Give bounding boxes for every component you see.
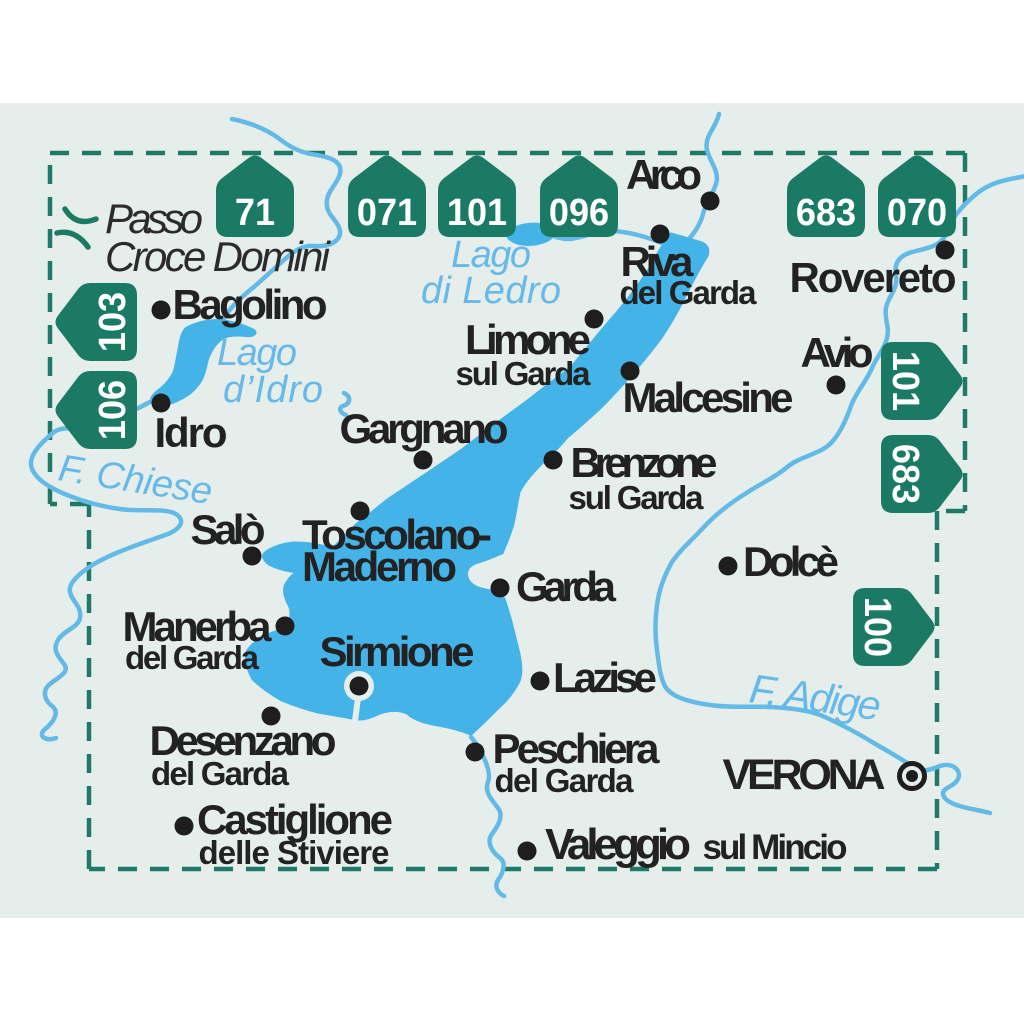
svg-text:71: 71 xyxy=(235,190,275,233)
svg-text:103: 103 xyxy=(90,292,133,352)
svg-text:del Garda: del Garda xyxy=(620,274,758,311)
svg-text:101: 101 xyxy=(885,351,928,411)
svg-text:Valeggio: Valeggio xyxy=(545,820,691,869)
svg-text:101: 101 xyxy=(447,190,507,233)
svg-text:d’Idro: d’Idro xyxy=(223,369,323,411)
svg-text:Croce Domini: Croce Domini xyxy=(105,233,332,280)
svg-text:096: 096 xyxy=(549,190,609,233)
svg-text:Lago: Lago xyxy=(217,332,297,374)
svg-text:100: 100 xyxy=(857,597,900,657)
svg-text:070: 070 xyxy=(887,190,947,233)
svg-text:sul Mincio: sul Mincio xyxy=(703,828,848,867)
svg-text:Sirmione: Sirmione xyxy=(320,628,475,675)
svg-text:del Garda: del Garda xyxy=(151,755,290,792)
svg-text:Rovereto: Rovereto xyxy=(790,254,957,301)
svg-text:071: 071 xyxy=(357,190,417,233)
svg-text:683: 683 xyxy=(796,190,856,233)
svg-text:683: 683 xyxy=(885,444,928,504)
svg-text:Dolcè: Dolcè xyxy=(743,538,839,585)
svg-text:Garda: Garda xyxy=(516,563,617,610)
svg-text:sul Garda: sul Garda xyxy=(456,355,592,392)
svg-text:Salò: Salò xyxy=(191,506,266,553)
svg-text:Malcesine: Malcesine xyxy=(623,374,794,421)
svg-text:sul Garda: sul Garda xyxy=(569,479,705,516)
svg-text:106: 106 xyxy=(90,380,133,440)
svg-text:delle Stiviere: delle Stiviere xyxy=(199,834,390,871)
svg-text:VERONA: VERONA xyxy=(723,751,886,799)
svg-text:Bagolino: Bagolino xyxy=(173,281,328,328)
svg-text:Avio: Avio xyxy=(801,329,874,376)
svg-text:Arco: Arco xyxy=(626,151,702,198)
svg-text:di Ledro: di Ledro xyxy=(421,270,561,312)
svg-text:del Garda: del Garda xyxy=(125,639,260,676)
svg-text:Maderno: Maderno xyxy=(302,543,457,590)
svg-text:del Garda: del Garda xyxy=(495,762,635,799)
svg-text:Gargnano: Gargnano xyxy=(340,405,509,452)
svg-text:Lazise: Lazise xyxy=(553,654,657,701)
svg-text:Idro: Idro xyxy=(155,409,228,456)
